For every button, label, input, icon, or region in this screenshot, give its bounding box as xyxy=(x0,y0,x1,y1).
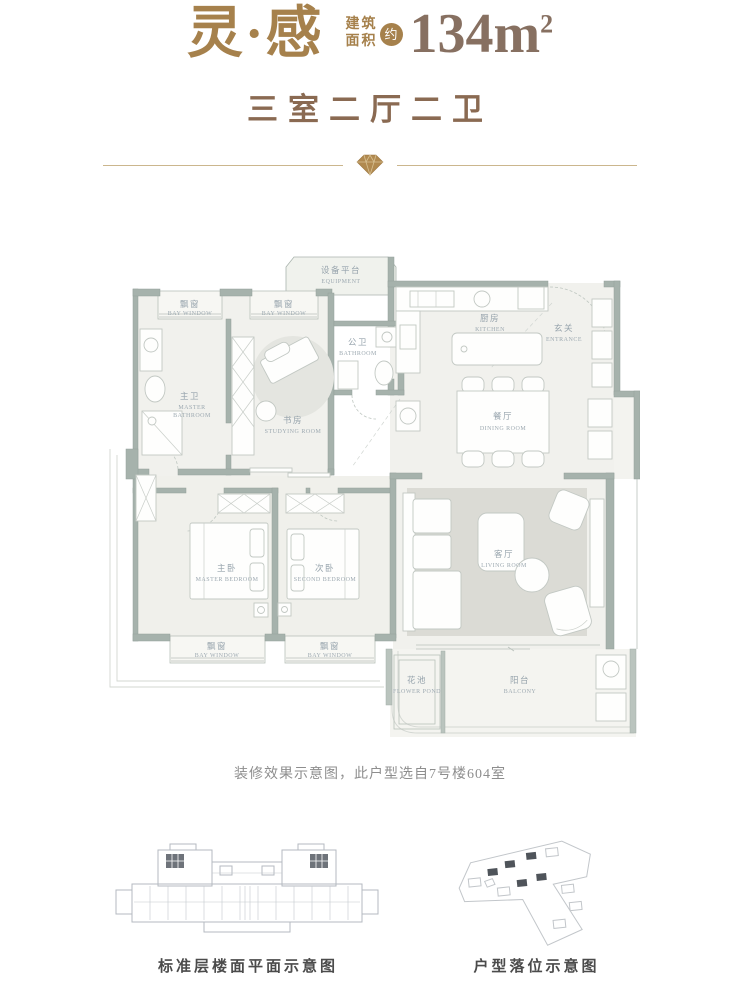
approx-badge: 约 xyxy=(380,23,403,46)
unit-subtitle: 三室二厅二卫 xyxy=(0,84,740,129)
second-bedroom-label: 次卧 xyxy=(315,563,335,573)
unit-title: 灵·感 xyxy=(187,6,324,62)
area-sup: 2 xyxy=(540,9,553,38)
area-value: 134m2 xyxy=(410,6,554,62)
entrance-label: 玄关 xyxy=(554,323,574,333)
study-label: 书房 xyxy=(283,415,303,425)
plan-caption: 装修效果示意图，此户型选自7号楼604室 xyxy=(0,763,740,783)
svg-text:BALCONY: BALCONY xyxy=(504,689,537,695)
floorplan-poster: 灵·感 建筑 面积 约 134m2 三室二厅二卫 xyxy=(0,0,740,986)
svg-text:BAY WINDOW: BAY WINDOW xyxy=(195,653,240,659)
bay-window-label-4: 飘窗 xyxy=(320,641,340,651)
equipment-label: 设备平台 xyxy=(321,265,361,275)
header: 灵·感 建筑 面积 约 134m2 xyxy=(0,6,740,62)
dining-label: 餐厅 xyxy=(493,411,513,421)
bay-window-label-1: 飘窗 xyxy=(180,299,200,309)
divider xyxy=(103,153,637,177)
svg-text:FLOWER POND: FLOWER POND xyxy=(393,689,441,695)
svg-text:LIVING ROOM: LIVING ROOM xyxy=(481,563,527,569)
bay-window-label-3: 飘窗 xyxy=(207,641,227,651)
svg-text:BAY WINDOW: BAY WINDOW xyxy=(308,653,353,659)
public-bathroom-label: 公卫 xyxy=(348,337,368,347)
living-room-label: 客厅 xyxy=(494,549,514,559)
svg-text:BATHROOM: BATHROOM xyxy=(339,351,377,357)
svg-text:DINING ROOM: DINING ROOM xyxy=(480,426,526,432)
svg-text:MASTER: MASTER xyxy=(178,405,205,411)
balcony-label: 阳台 xyxy=(510,675,530,685)
bay-window-label-2: 飘窗 xyxy=(274,299,294,309)
dining-set xyxy=(457,377,549,467)
svg-text:BAY WINDOW: BAY WINDOW xyxy=(168,311,213,317)
area-label-line2: 面积 xyxy=(346,34,378,51)
svg-text:KITCHEN: KITCHEN xyxy=(475,327,505,333)
svg-text:STUDYING ROOM: STUDYING ROOM xyxy=(265,429,322,435)
unit-location-caption: 户型落位示意图 xyxy=(434,955,639,976)
standard-floor-caption: 标准层楼面平面示意图 xyxy=(112,955,384,976)
master-bedroom-label: 主卧 xyxy=(217,563,237,573)
kitchen-label: 厨房 xyxy=(480,313,500,323)
hall-appliance xyxy=(396,401,420,431)
diamond-gem-icon xyxy=(356,154,384,176)
unit-location-diagram xyxy=(442,834,632,950)
area-label: 建筑 面积 xyxy=(346,17,378,51)
site-outline xyxy=(455,838,599,950)
building-outline xyxy=(116,844,378,932)
floor-plan: 飘窗 BAY WINDOW 飘窗 BAY WINDOW 设备平台 EQUIPME… xyxy=(100,241,640,749)
svg-text:BAY WINDOW: BAY WINDOW xyxy=(262,311,307,317)
standard-floor-diagram xyxy=(112,836,384,948)
svg-text:MASTER BEDROOM: MASTER BEDROOM xyxy=(196,577,259,583)
svg-text:ENTRANCE: ENTRANCE xyxy=(546,337,582,343)
svg-text:SECOND BEDROOM: SECOND BEDROOM xyxy=(294,577,357,583)
divider-line-right xyxy=(397,165,637,166)
entrance-cabinets xyxy=(588,299,612,459)
area-group: 建筑 面积 约 134m2 xyxy=(346,6,554,62)
master-bathroom-label: 主卫 xyxy=(180,391,200,401)
svg-text:EQUIPMENT: EQUIPMENT xyxy=(321,279,360,285)
svg-text:BATHROOM: BATHROOM xyxy=(173,413,211,419)
flower-pond-label: 花池 xyxy=(407,675,427,685)
divider-line-left xyxy=(103,165,343,166)
area-label-line1: 建筑 xyxy=(346,17,378,34)
